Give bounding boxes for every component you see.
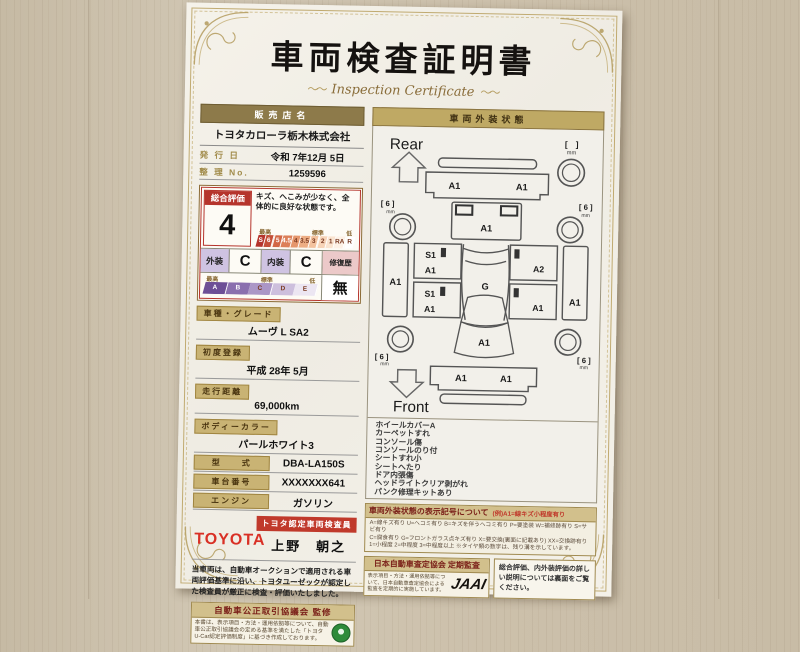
dealer-name: トヨタカローラ栃木株式会社 bbox=[200, 123, 364, 149]
spec-label: 車台番号 bbox=[193, 474, 269, 490]
car-top-view-diagram: Rear [ ] mm A1 A1 bbox=[368, 126, 603, 416]
mark-left-rear-door-upper: S1 bbox=[425, 250, 436, 260]
grade-scale-cell: R bbox=[344, 237, 356, 249]
fair-trade-seal-icon bbox=[331, 624, 350, 643]
spec-mileage: 走行距離 69,000km bbox=[195, 381, 360, 417]
spec-value: パールホワイト3 bbox=[194, 434, 358, 456]
back-side-note: 総合評価、内外装評価の詳しい説明については裏面をご覧ください。 bbox=[493, 559, 596, 600]
right-panel: 車両外装状態 Rear [ ] mm A1 bbox=[362, 107, 604, 652]
mark-front-bumper-left: A1 bbox=[455, 373, 467, 383]
certificate-paper: 車両検査証明書 〜〜 Inspection Certificate 〜〜 販売店… bbox=[175, 2, 622, 596]
photo-wood-background: { "colors": { "accent_red": "#b5342c", "… bbox=[0, 0, 800, 599]
mark-tailgate: A1 bbox=[480, 223, 492, 233]
spec-label: 初度登録 bbox=[196, 345, 250, 361]
spec-value: 平成 28年 5月 bbox=[195, 360, 359, 382]
spec-value: XXXXXXX641 bbox=[269, 477, 357, 490]
grade-scale-strip: S 6 5 4.5 4 3.5 3 2 1 RA bbox=[255, 235, 356, 249]
repair-history-label: 修復歴 bbox=[322, 251, 358, 275]
overall-grade-value: 4 bbox=[204, 205, 251, 246]
spare-tire-unit: mm bbox=[567, 150, 577, 156]
spec-value: ムーヴ L SA2 bbox=[196, 321, 360, 343]
ref-no-value: 1259596 bbox=[251, 167, 363, 180]
door-handle-mark bbox=[441, 248, 446, 257]
mark-windshield: G bbox=[482, 282, 489, 292]
spec-label: 走行距離 bbox=[195, 384, 249, 400]
rear-right-tire-depth: [ 6 ] bbox=[579, 203, 593, 212]
mark-left-rear-door-lower: A1 bbox=[425, 265, 436, 275]
evaluation-comment: キズ、へこみが少なく、全体的に良好な状態です。 bbox=[255, 192, 357, 229]
issue-date-label: 発 行 日 bbox=[200, 149, 252, 162]
evaluation-box: 総合評価 4 キズ、へこみが少なく、全体的に良好な状態です。 最高 標準 低 bbox=[197, 185, 363, 304]
symbol-legend-box: 車両外装状態の表示記号について (例)A1=線キズ小程度有り A=線キズ有り U… bbox=[364, 503, 597, 557]
tire-unit: mm bbox=[581, 213, 590, 219]
flourish-right: 〜〜 bbox=[480, 84, 498, 100]
interior-grade-label: 内装 bbox=[261, 250, 290, 274]
overall-grade-label: 総合評価 bbox=[205, 191, 251, 206]
rear-arrow-icon bbox=[392, 152, 425, 182]
condition-notes-list: ホイールカバーA カーペットすれ コンソール傷 コンソールのり付 シートすれ小 … bbox=[366, 417, 598, 502]
spec-first-registration: 初度登録 平成 28年 5月 bbox=[195, 342, 360, 382]
jaai-logo: JAAI bbox=[449, 576, 487, 594]
mark-right-quarter: A1 bbox=[569, 298, 581, 308]
page-title: 車両検査証明書 bbox=[201, 29, 606, 85]
door-handle-mark bbox=[514, 288, 519, 297]
spare-tire-depth: [ ] bbox=[565, 140, 579, 149]
fair-trade-box: 自動車公正取引協議会 監修 本書は、表示項目・方法・運用依拠等について、自動車公… bbox=[190, 602, 355, 647]
issue-date-value: 令和 7年12月 5日 bbox=[252, 149, 364, 165]
certified-inspector-badge: トヨタ認定車両検査員 bbox=[256, 516, 356, 533]
spec-value: DBA-LA150S bbox=[270, 458, 358, 471]
spec-model-grade: 車種・グレード ムーヴ L SA2 bbox=[196, 303, 361, 343]
car-diagram-box: Rear [ ] mm A1 A1 bbox=[365, 126, 604, 503]
mark-hood: A1 bbox=[478, 338, 490, 348]
jaai-body-text: 表示項目・方法・運用依拠等について、日本自動車査定協会による監査を定期的に実施し… bbox=[367, 573, 449, 594]
tire-unit: mm bbox=[380, 361, 389, 367]
door-handle-mark bbox=[440, 287, 445, 296]
spec-label: 車種・グレード bbox=[196, 306, 280, 323]
mark-front-bumper-right: A1 bbox=[500, 374, 512, 384]
mark-left-quarter: A1 bbox=[389, 277, 401, 287]
spec-engine: エンジン ガソリン bbox=[193, 493, 357, 513]
mark-rear-bumper-left: A1 bbox=[448, 181, 460, 191]
spec-value: 69,000km bbox=[195, 399, 359, 417]
flourish-left: 〜〜 bbox=[307, 81, 325, 97]
spec-model-code: 型 式 DBA-LA150S bbox=[194, 455, 358, 475]
legend-title: 車両外装状態の表示記号について bbox=[369, 505, 489, 518]
mark-right-front-door: A1 bbox=[532, 303, 543, 313]
legend-example: (例)A1=線キズ小程度有り bbox=[493, 508, 566, 518]
inspector-name: 上野 朝之 bbox=[271, 535, 346, 555]
repair-history-value: 無 bbox=[321, 275, 358, 301]
mark-rear-bumper-right: A1 bbox=[516, 182, 528, 192]
spec-label: ボディーカラー bbox=[194, 419, 278, 436]
left-panel: 販売店名 トヨタカローラ栃木株式会社 発 行 日 令和 7年12月 5日 整 理… bbox=[190, 104, 364, 647]
spec-label: エンジン bbox=[193, 493, 269, 509]
mark-right-rear-door: A2 bbox=[533, 264, 544, 274]
spec-label: 型 式 bbox=[194, 455, 270, 471]
letter-scale-cell: A bbox=[202, 282, 228, 294]
letter-scale-cell: C bbox=[248, 283, 274, 295]
exterior-grade-label: 外装 bbox=[200, 249, 229, 273]
tire-unit: mm bbox=[579, 365, 588, 371]
ref-no-row: 整 理 No. 1259596 bbox=[199, 164, 363, 183]
page-subtitle: Inspection Certificate bbox=[331, 82, 474, 100]
rear-left-tire-depth: [ 6 ] bbox=[381, 199, 395, 208]
tire-unit: mm bbox=[386, 209, 395, 215]
letter-scale-cell: E bbox=[293, 284, 319, 296]
spec-chassis-no: 車台番号 XXXXXXX641 bbox=[193, 474, 357, 494]
mark-left-front-door-lower: A1 bbox=[424, 304, 435, 314]
spec-value: ガソリン bbox=[269, 494, 357, 511]
front-left-tire-depth: [ 6 ] bbox=[375, 352, 389, 361]
overall-grade-box: 総合評価 4 bbox=[203, 190, 252, 247]
toyota-logo: TOYOTA bbox=[194, 531, 266, 550]
mark-left-front-door-upper: S1 bbox=[424, 289, 435, 299]
front-label: Front bbox=[393, 398, 430, 416]
disclaimer-text: 当車両は、自動車オークションで適用される車両評価基準に沿い、トヨタユーゼックが認… bbox=[191, 565, 356, 600]
spec-body-color: ボディーカラー パールホワイト3 bbox=[194, 416, 359, 456]
interior-grade-value: C bbox=[290, 250, 322, 274]
letter-scale-strip: A B C D E bbox=[202, 282, 319, 296]
front-right-tire-depth: [ 6 ] bbox=[577, 356, 591, 365]
front-arrow-icon bbox=[390, 370, 423, 398]
jaai-audit-box: 日本自動車査定協会 定期監査 表示項目・方法・運用依拠等について、日本自動車査定… bbox=[363, 556, 490, 598]
fair-trade-body: 本書は、表示項目・方法・運用依拠等について、自動車公正取引協議会の定める基準を満… bbox=[194, 620, 328, 644]
inspector-section: TOYOTA トヨタ認定車両検査員 上野 朝之 bbox=[192, 513, 357, 563]
exterior-grade-value: C bbox=[229, 249, 261, 273]
door-handle-mark bbox=[514, 249, 519, 258]
rear-label: Rear bbox=[390, 136, 424, 154]
ref-no-label: 整 理 No. bbox=[199, 166, 251, 179]
